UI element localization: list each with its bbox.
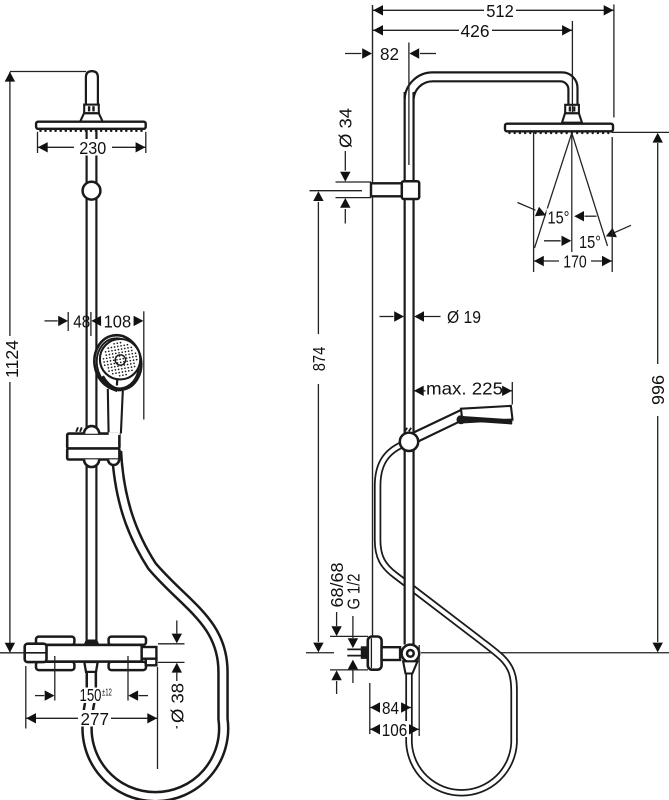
svg-text:15°: 15°	[548, 207, 570, 227]
svg-text:82: 82	[380, 44, 399, 64]
svg-text:Ø 38: Ø 38	[167, 683, 187, 723]
svg-text:230: 230	[79, 138, 106, 158]
svg-text:996: 996	[648, 375, 668, 405]
svg-text:512: 512	[486, 1, 514, 21]
svg-text:1124: 1124	[2, 340, 22, 378]
svg-text:Ø 34: Ø 34	[336, 108, 356, 148]
svg-text:106: 106	[382, 720, 408, 740]
svg-text:±12: ±12	[102, 687, 112, 699]
svg-text:Ø 19: Ø 19	[447, 307, 481, 327]
svg-text:426: 426	[461, 21, 490, 41]
svg-text:108: 108	[104, 311, 132, 331]
svg-text:874: 874	[309, 347, 329, 372]
svg-text:G 1/2: G 1/2	[344, 574, 364, 610]
svg-text:48: 48	[73, 311, 90, 331]
svg-text:170: 170	[563, 252, 587, 272]
svg-text:max. 225: max. 225	[426, 379, 503, 399]
svg-text:15°: 15°	[579, 232, 601, 252]
svg-text:150: 150	[80, 685, 102, 705]
svg-text:277: 277	[81, 709, 110, 729]
svg-text:84: 84	[382, 698, 399, 718]
